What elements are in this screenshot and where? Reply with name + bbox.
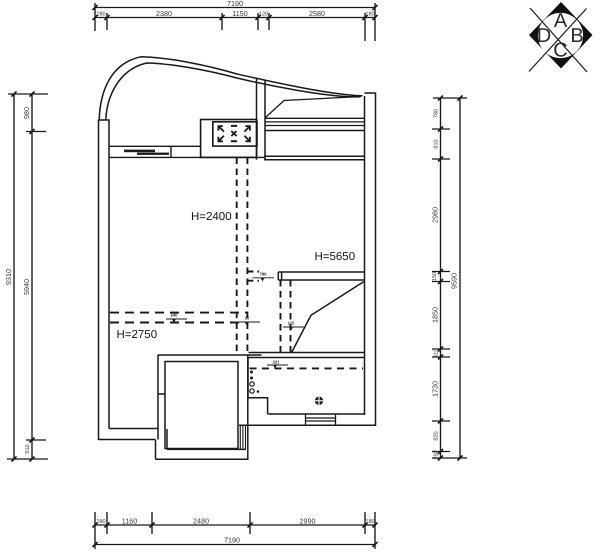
- svg-text:2980: 2980: [431, 207, 440, 223]
- svg-text:280: 280: [96, 12, 105, 18]
- svg-text:5940: 5940: [22, 279, 31, 295]
- svg-text:2380: 2380: [156, 9, 172, 18]
- svg-text:7190: 7190: [227, 0, 243, 8]
- svg-text:2990: 2990: [300, 517, 316, 526]
- svg-text:240: 240: [171, 313, 179, 318]
- svg-text:7190: 7190: [224, 536, 240, 545]
- svg-text:C: C: [553, 40, 567, 62]
- svg-text:H=5650: H=5650: [315, 251, 356, 263]
- svg-text:510: 510: [25, 444, 31, 453]
- svg-text:115: 115: [288, 321, 295, 326]
- svg-text:980: 980: [22, 107, 31, 119]
- svg-text:780: 780: [434, 109, 440, 118]
- svg-text:280: 280: [96, 519, 105, 525]
- svg-text:1850: 1850: [431, 307, 440, 323]
- svg-text:H=2400: H=2400: [191, 211, 232, 223]
- svg-text:9310: 9310: [4, 269, 13, 285]
- svg-text:780: 780: [260, 272, 268, 277]
- svg-text:B: B: [570, 25, 583, 47]
- svg-text:2580: 2580: [309, 9, 325, 18]
- svg-text:2480: 2480: [193, 517, 209, 526]
- svg-text:321: 321: [273, 360, 281, 365]
- svg-text:A: A: [554, 10, 568, 32]
- svg-text:1730: 1730: [431, 381, 440, 397]
- svg-text:180: 180: [365, 12, 374, 18]
- svg-text:110: 110: [434, 349, 440, 358]
- svg-text:820: 820: [434, 431, 440, 440]
- svg-text:180: 180: [365, 519, 374, 525]
- svg-text:150: 150: [432, 272, 438, 281]
- svg-text:H=2750: H=2750: [117, 329, 158, 341]
- svg-text:1160: 1160: [122, 517, 137, 526]
- svg-text:D: D: [537, 25, 551, 47]
- svg-text:1150: 1150: [232, 9, 247, 18]
- svg-text:9590: 9590: [450, 273, 459, 289]
- svg-text:120: 120: [259, 12, 268, 18]
- svg-text:35: 35: [245, 316, 250, 321]
- svg-text:250: 250: [434, 450, 440, 459]
- svg-text:810: 810: [434, 139, 440, 148]
